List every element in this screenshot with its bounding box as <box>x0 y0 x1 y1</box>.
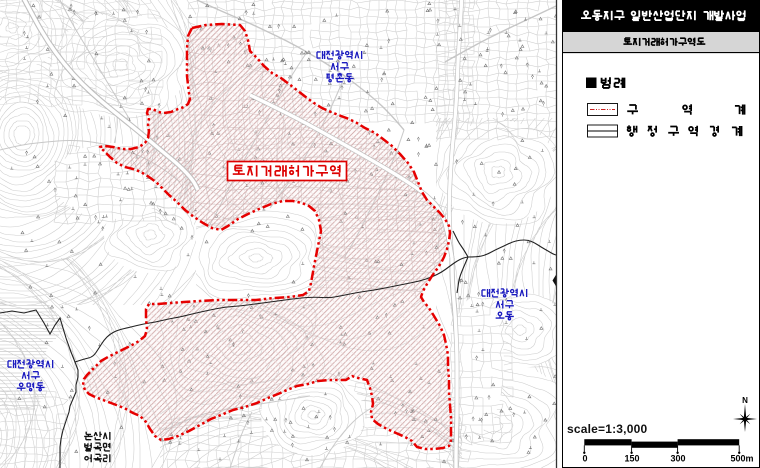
svg-text:500m: 500m <box>730 454 753 464</box>
svg-text:N: N <box>742 396 748 405</box>
svg-text:0: 0 <box>582 454 587 464</box>
svg-text:300: 300 <box>670 454 685 464</box>
svg-text:scale=1:3,000: scale=1:3,000 <box>567 422 647 436</box>
svg-text:150: 150 <box>624 454 639 464</box>
